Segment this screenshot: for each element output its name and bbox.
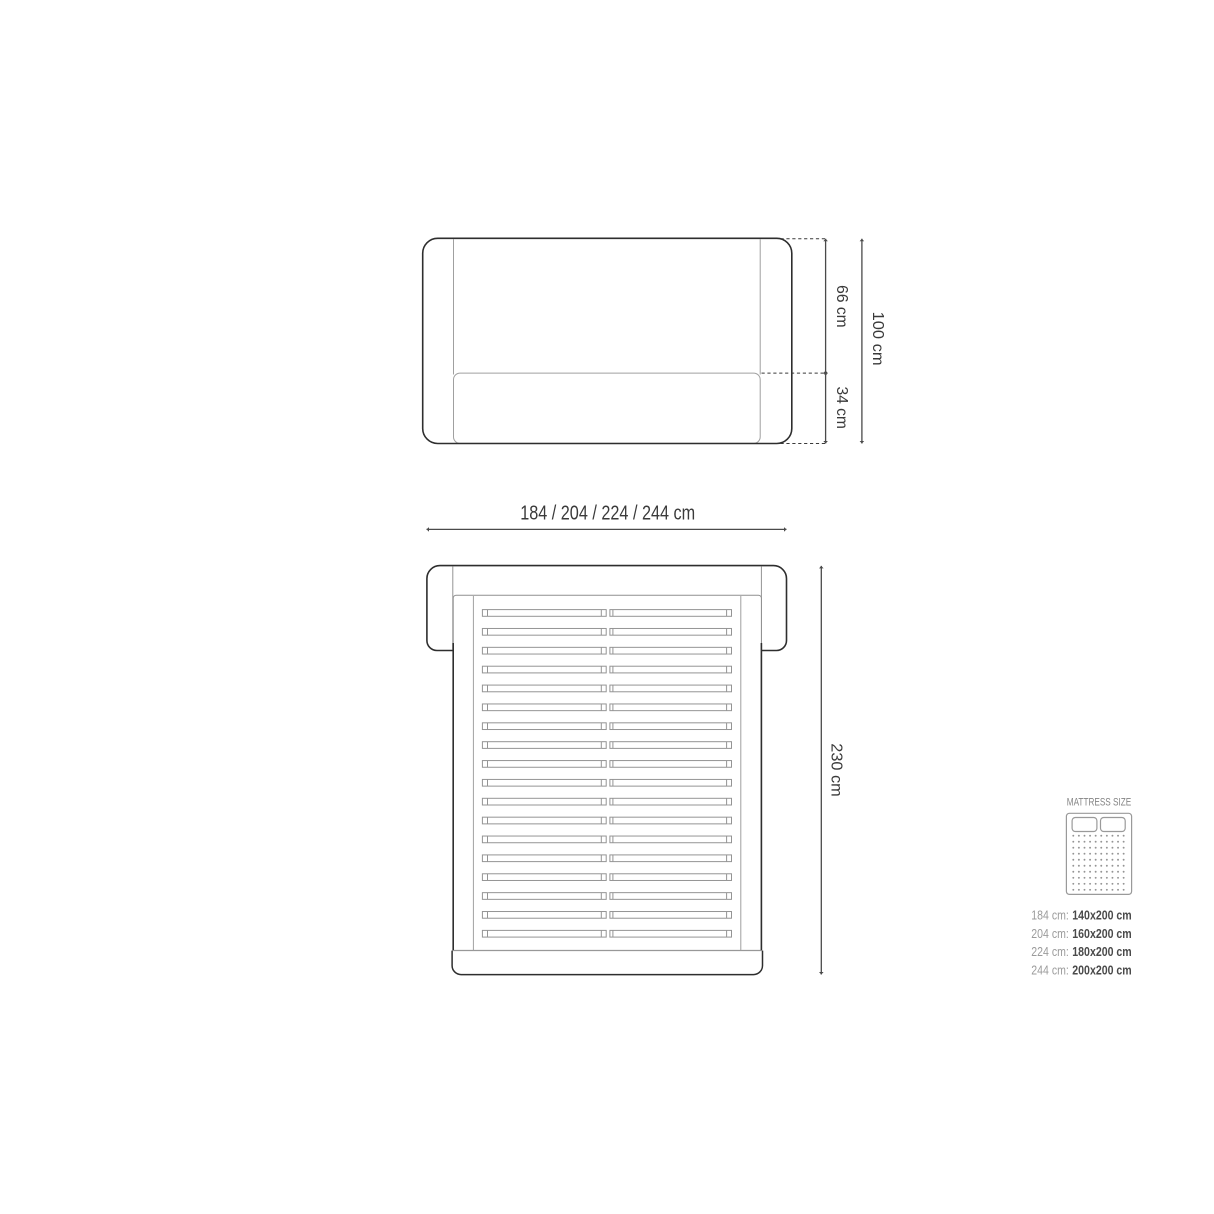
svg-text:184 cm:: 184 cm: bbox=[1031, 909, 1069, 923]
svg-text:34 cm: 34 cm bbox=[833, 386, 850, 429]
svg-text:224 cm:: 224 cm: bbox=[1031, 945, 1069, 959]
svg-text:204 cm:: 204 cm: bbox=[1031, 927, 1069, 941]
svg-text:180x200 cm: 180x200 cm bbox=[1072, 945, 1131, 959]
svg-text:184 / 204 / 224 / 244 cm: 184 / 204 / 224 / 244 cm bbox=[520, 503, 695, 525]
svg-text:244 cm:: 244 cm: bbox=[1031, 964, 1069, 978]
svg-text:200x200 cm: 200x200 cm bbox=[1072, 964, 1131, 978]
svg-text:100 cm: 100 cm bbox=[869, 312, 886, 366]
svg-text:160x200 cm: 160x200 cm bbox=[1072, 927, 1131, 941]
svg-text:MATTRESS SIZE: MATTRESS SIZE bbox=[1067, 797, 1132, 809]
svg-text:66 cm: 66 cm bbox=[833, 285, 850, 328]
svg-text:230 cm: 230 cm bbox=[828, 743, 845, 797]
svg-text:140x200 cm: 140x200 cm bbox=[1072, 909, 1131, 923]
